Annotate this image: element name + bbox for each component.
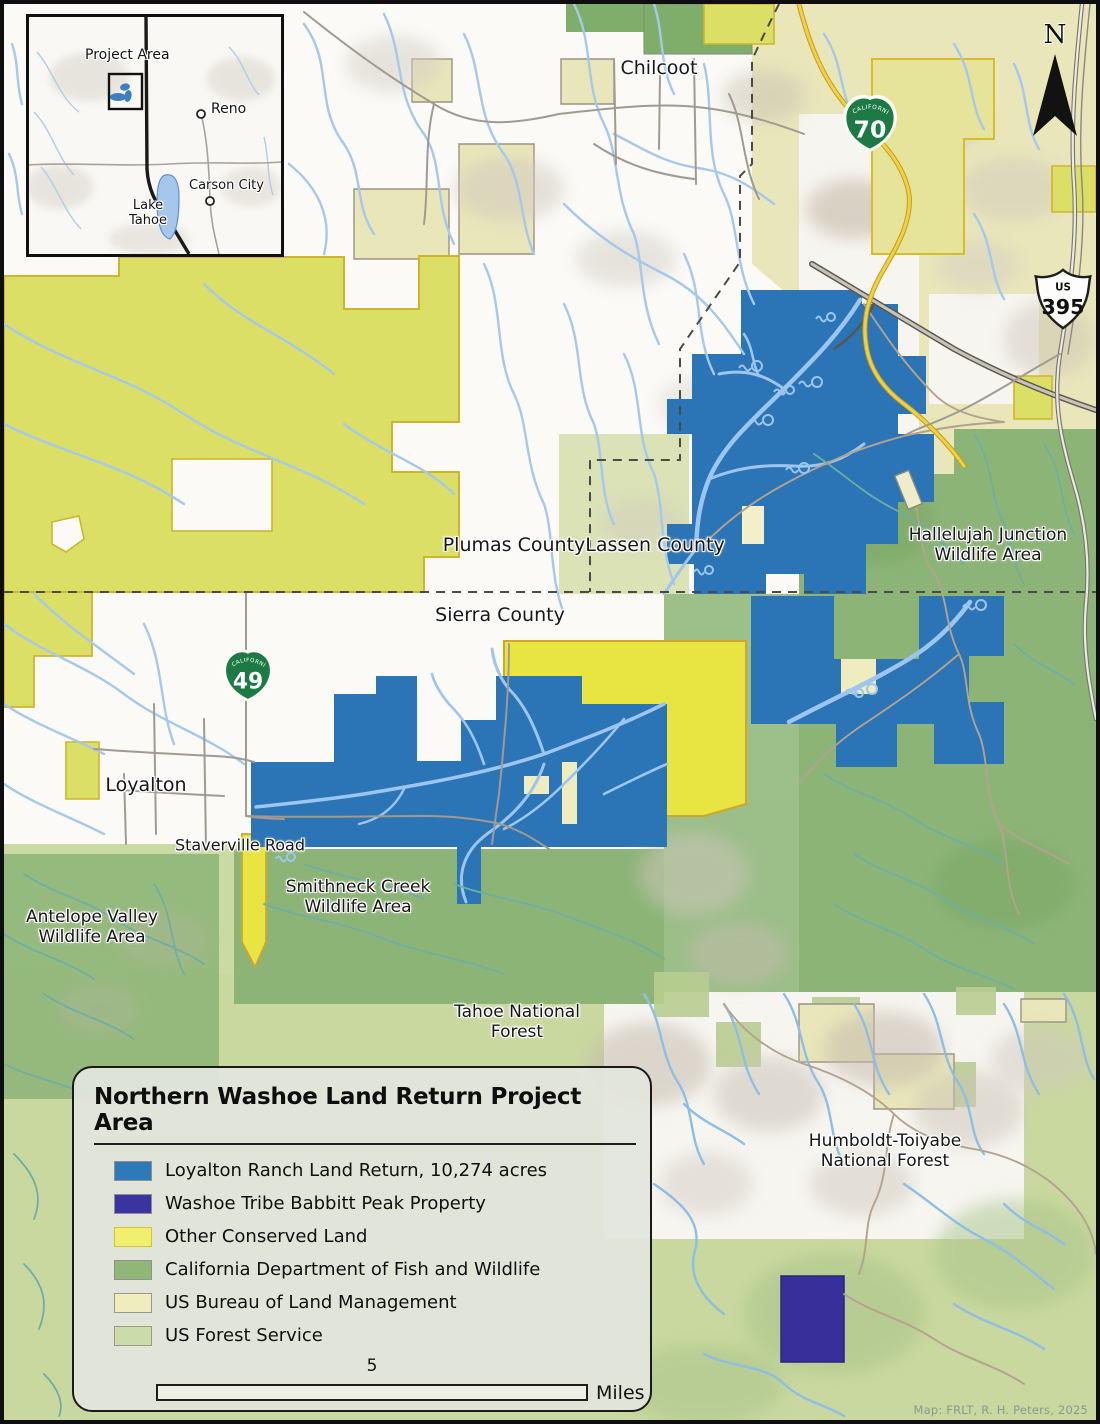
legend-item-usfs: US Forest Service (94, 1319, 636, 1352)
county-label-lassen: Lassen County (585, 534, 724, 556)
legend-swatch-blm (114, 1293, 152, 1313)
legend-item-babbitt-peak: Washoe Tribe Babbitt Peak Property (94, 1187, 636, 1220)
inset-lake-tahoe-label: LakeTahoe (125, 199, 171, 229)
legend-swatch-usfs (114, 1326, 152, 1346)
map-credit: Map: FRLT, R. H. Peters, 2025 (914, 1403, 1089, 1417)
shield-number-ca70: 70 (854, 116, 887, 144)
place-label-loyalton: Loyalton (105, 774, 186, 796)
legend-label-blm: US Bureau of Land Management (165, 1292, 457, 1313)
legend-panel: Northern Washoe Land Return Project Area… (72, 1066, 652, 1412)
legend-swatch-babbitt-peak (114, 1194, 152, 1214)
area-label-hallelujah: Hallelujah JunctionWildlife Area (909, 525, 1067, 565)
legend-item-blm: US Bureau of Land Management (94, 1286, 636, 1319)
scale-unit: Miles (596, 1382, 645, 1404)
area-label-tahoe-nf: Tahoe NationalForest (454, 1002, 580, 1042)
scale-bar-group: 5 Miles (94, 1356, 636, 1424)
legend-swatch-other-conserved (114, 1227, 152, 1247)
route-shield-ca49: CALIFORNIA 49 (222, 648, 274, 704)
shield-banner-us395: US (1055, 282, 1071, 294)
legend-title: Northern Washoe Land Return Project Area (94, 1084, 636, 1136)
legend-item-other-conserved: Other Conserved Land (94, 1220, 636, 1253)
legend-item-loyalton-ranch: Loyalton Ranch Land Return, 10,274 acres (94, 1154, 636, 1187)
legend-swatch-cdfw (114, 1260, 152, 1280)
shield-number-us395: 395 (1041, 295, 1084, 319)
shield-number-ca49: 49 (233, 670, 263, 695)
area-label-antelope: Antelope ValleyWildlife Area (26, 907, 158, 947)
legend-label-cdfw: California Department of Fish and Wildli… (165, 1259, 540, 1280)
legend-swatch-loyalton-ranch (114, 1161, 152, 1181)
legend-label-other-conserved: Other Conserved Land (165, 1226, 367, 1247)
legend-item-cdfw: California Department of Fish and Wildli… (94, 1253, 636, 1286)
inset-city-label-reno: Reno (211, 101, 246, 117)
locator-inset-map: Project Area Reno Carson City LakeTahoe (26, 14, 284, 257)
scale-bar (156, 1384, 588, 1401)
inset-project-area-label: Project Area (85, 47, 170, 63)
legend-label-loyalton-ranch: Loyalton Ranch Land Return, 10,274 acres (165, 1160, 547, 1181)
scale-value: 5 (156, 1356, 588, 1376)
north-label: N (1026, 20, 1084, 50)
route-shield-ca70: CALIFORNIA 70 (842, 94, 898, 154)
legend-divider (94, 1143, 636, 1145)
route-shield-us395: US 395 (1032, 266, 1094, 332)
legend-label-usfs: US Forest Service (165, 1325, 323, 1346)
place-label-chilcoot: Chilcoot (620, 57, 697, 79)
county-label-sierra: Sierra County (435, 604, 565, 626)
north-arrow-icon (1026, 50, 1084, 142)
area-label-smithneck: Smithneck CreekWildlife Area (286, 877, 431, 917)
county-label-plumas: Plumas County (443, 534, 586, 556)
legend-label-babbitt-peak: Washoe Tribe Babbitt Peak Property (165, 1193, 486, 1214)
inset-city-label-carson-city: Carson City (189, 179, 264, 194)
babbitt-peak-parcel (781, 1276, 844, 1362)
north-arrow: N (1026, 20, 1084, 146)
road-label-staverville: Staverville Road (175, 837, 305, 856)
area-label-humboldt: Humboldt-ToiyabeNational Forest (809, 1131, 961, 1171)
map-page: Chilcoot Plumas County Lassen County Sie… (0, 0, 1100, 1424)
